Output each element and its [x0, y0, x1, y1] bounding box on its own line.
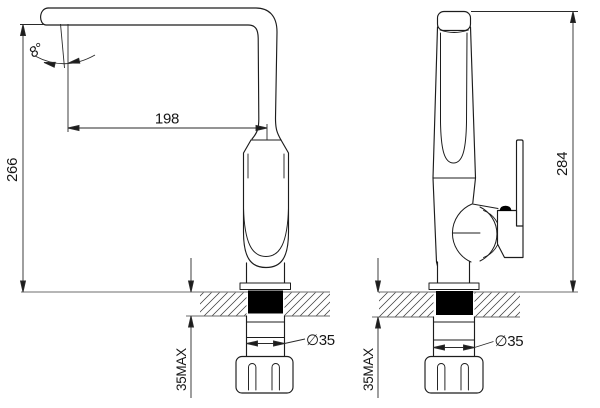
dim-198-label: 198	[155, 111, 179, 128]
technical-drawing-canvas: 266 198 8° 284 35MAX 35MAX	[0, 0, 600, 408]
base-flange-front	[429, 283, 479, 290]
mounting-nut	[236, 357, 293, 394]
base-flange	[240, 283, 291, 290]
mount-block	[248, 291, 283, 314]
dim-35max-right-label: 35MAX	[361, 348, 376, 391]
mounting-nut-front	[425, 357, 483, 394]
dim-284-label: 284	[554, 152, 571, 176]
handle-lever	[517, 140, 524, 226]
mount-block-front	[436, 291, 473, 315]
dim-266-label: 266	[4, 158, 21, 182]
dim-35max-left-label: 35MAX	[174, 348, 189, 391]
dim-dia35-right-label: ∅35	[495, 333, 524, 350]
spout-cap	[438, 12, 471, 31]
dim-dia35-left-label: ∅35	[306, 332, 335, 349]
